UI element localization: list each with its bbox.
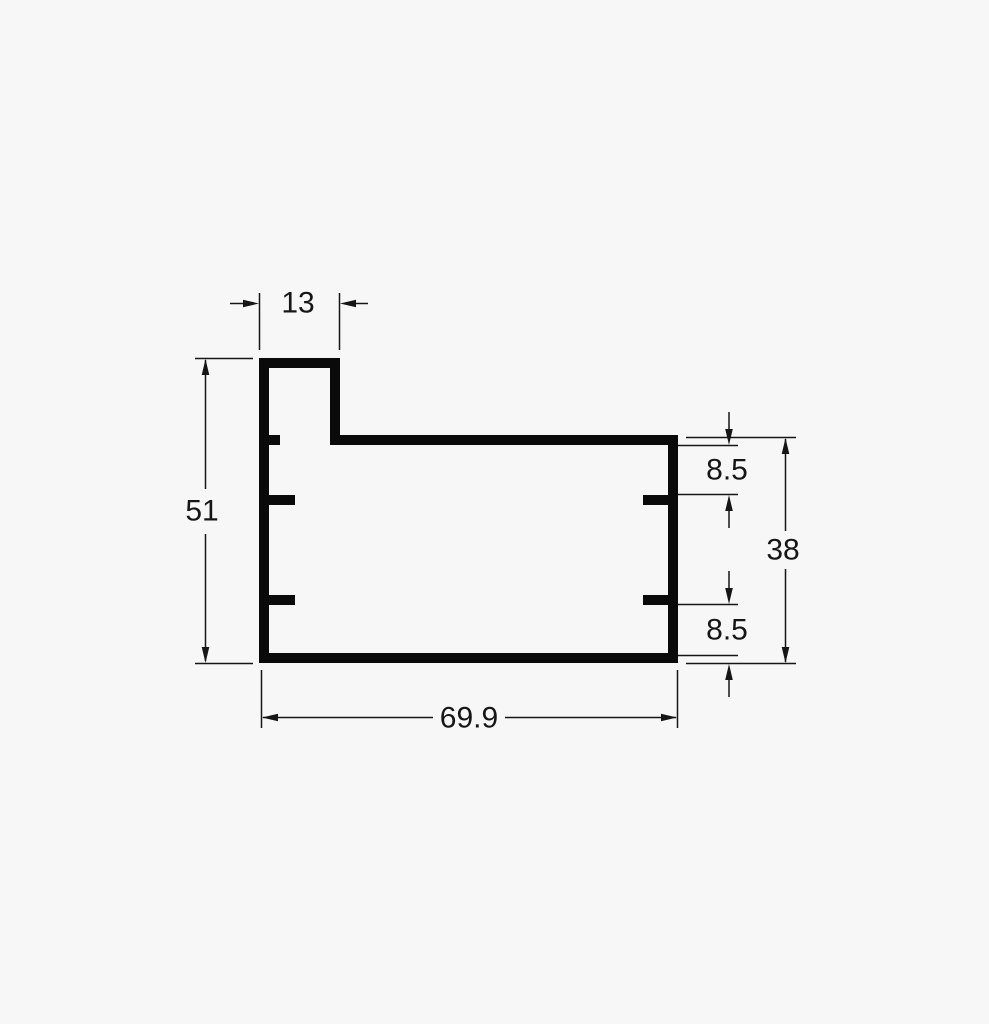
profile-web	[330, 435, 678, 445]
profile-tab-right-wall	[330, 358, 340, 445]
profile-rib-left-bottom	[269, 595, 295, 605]
dim-label-overall-width: 69.9	[440, 702, 498, 735]
arrowhead-right-height-up-icon	[782, 438, 790, 454]
profile-outline	[259, 358, 678, 663]
profile-rib-left-middle	[269, 495, 295, 505]
drawing-canvas: 13 51 69.9	[0, 0, 989, 1024]
arrowhead-right-height-down-icon	[782, 647, 790, 663]
dim-label-right-height: 38	[766, 534, 799, 567]
profile-rib-left-top	[269, 435, 280, 445]
profile-rib-right-middle	[643, 495, 668, 505]
profile-rib-right-bottom	[643, 595, 668, 605]
profile-right-wall	[668, 435, 678, 663]
dimension-overall-height: 51	[185, 359, 253, 664]
arrowhead-height-down-icon	[202, 647, 210, 663]
profile-top-cap	[259, 358, 340, 368]
dim-label-lower-offset: 8.5	[706, 614, 748, 647]
profile-left-wall	[259, 358, 269, 663]
profile-bottom-wall	[259, 653, 678, 663]
dimension-upper-offset: 8.5	[678, 412, 748, 528]
dimension-tab-width: 13	[230, 287, 368, 351]
arrowhead-upper-offset-up-icon	[725, 495, 733, 511]
arrowhead-width-right-icon	[661, 714, 677, 722]
dimension-lower-offset: 8.5	[678, 571, 748, 697]
arrowhead-tab-right-icon	[340, 300, 356, 308]
arrowhead-lower-offset-up-icon	[725, 664, 733, 680]
dimension-overall-width: 69.9	[262, 670, 678, 735]
arrowhead-width-left-icon	[262, 714, 278, 722]
arrowhead-height-up-icon	[202, 359, 210, 375]
arrowhead-tab-left-icon	[243, 300, 259, 308]
dim-label-overall-height: 51	[185, 495, 218, 528]
dim-label-tab-width: 13	[281, 287, 314, 320]
dim-label-upper-offset: 8.5	[706, 454, 748, 487]
profile-drawing-svg: 13 51 69.9	[0, 0, 989, 1024]
arrowhead-lower-offset-down-icon	[725, 588, 733, 604]
